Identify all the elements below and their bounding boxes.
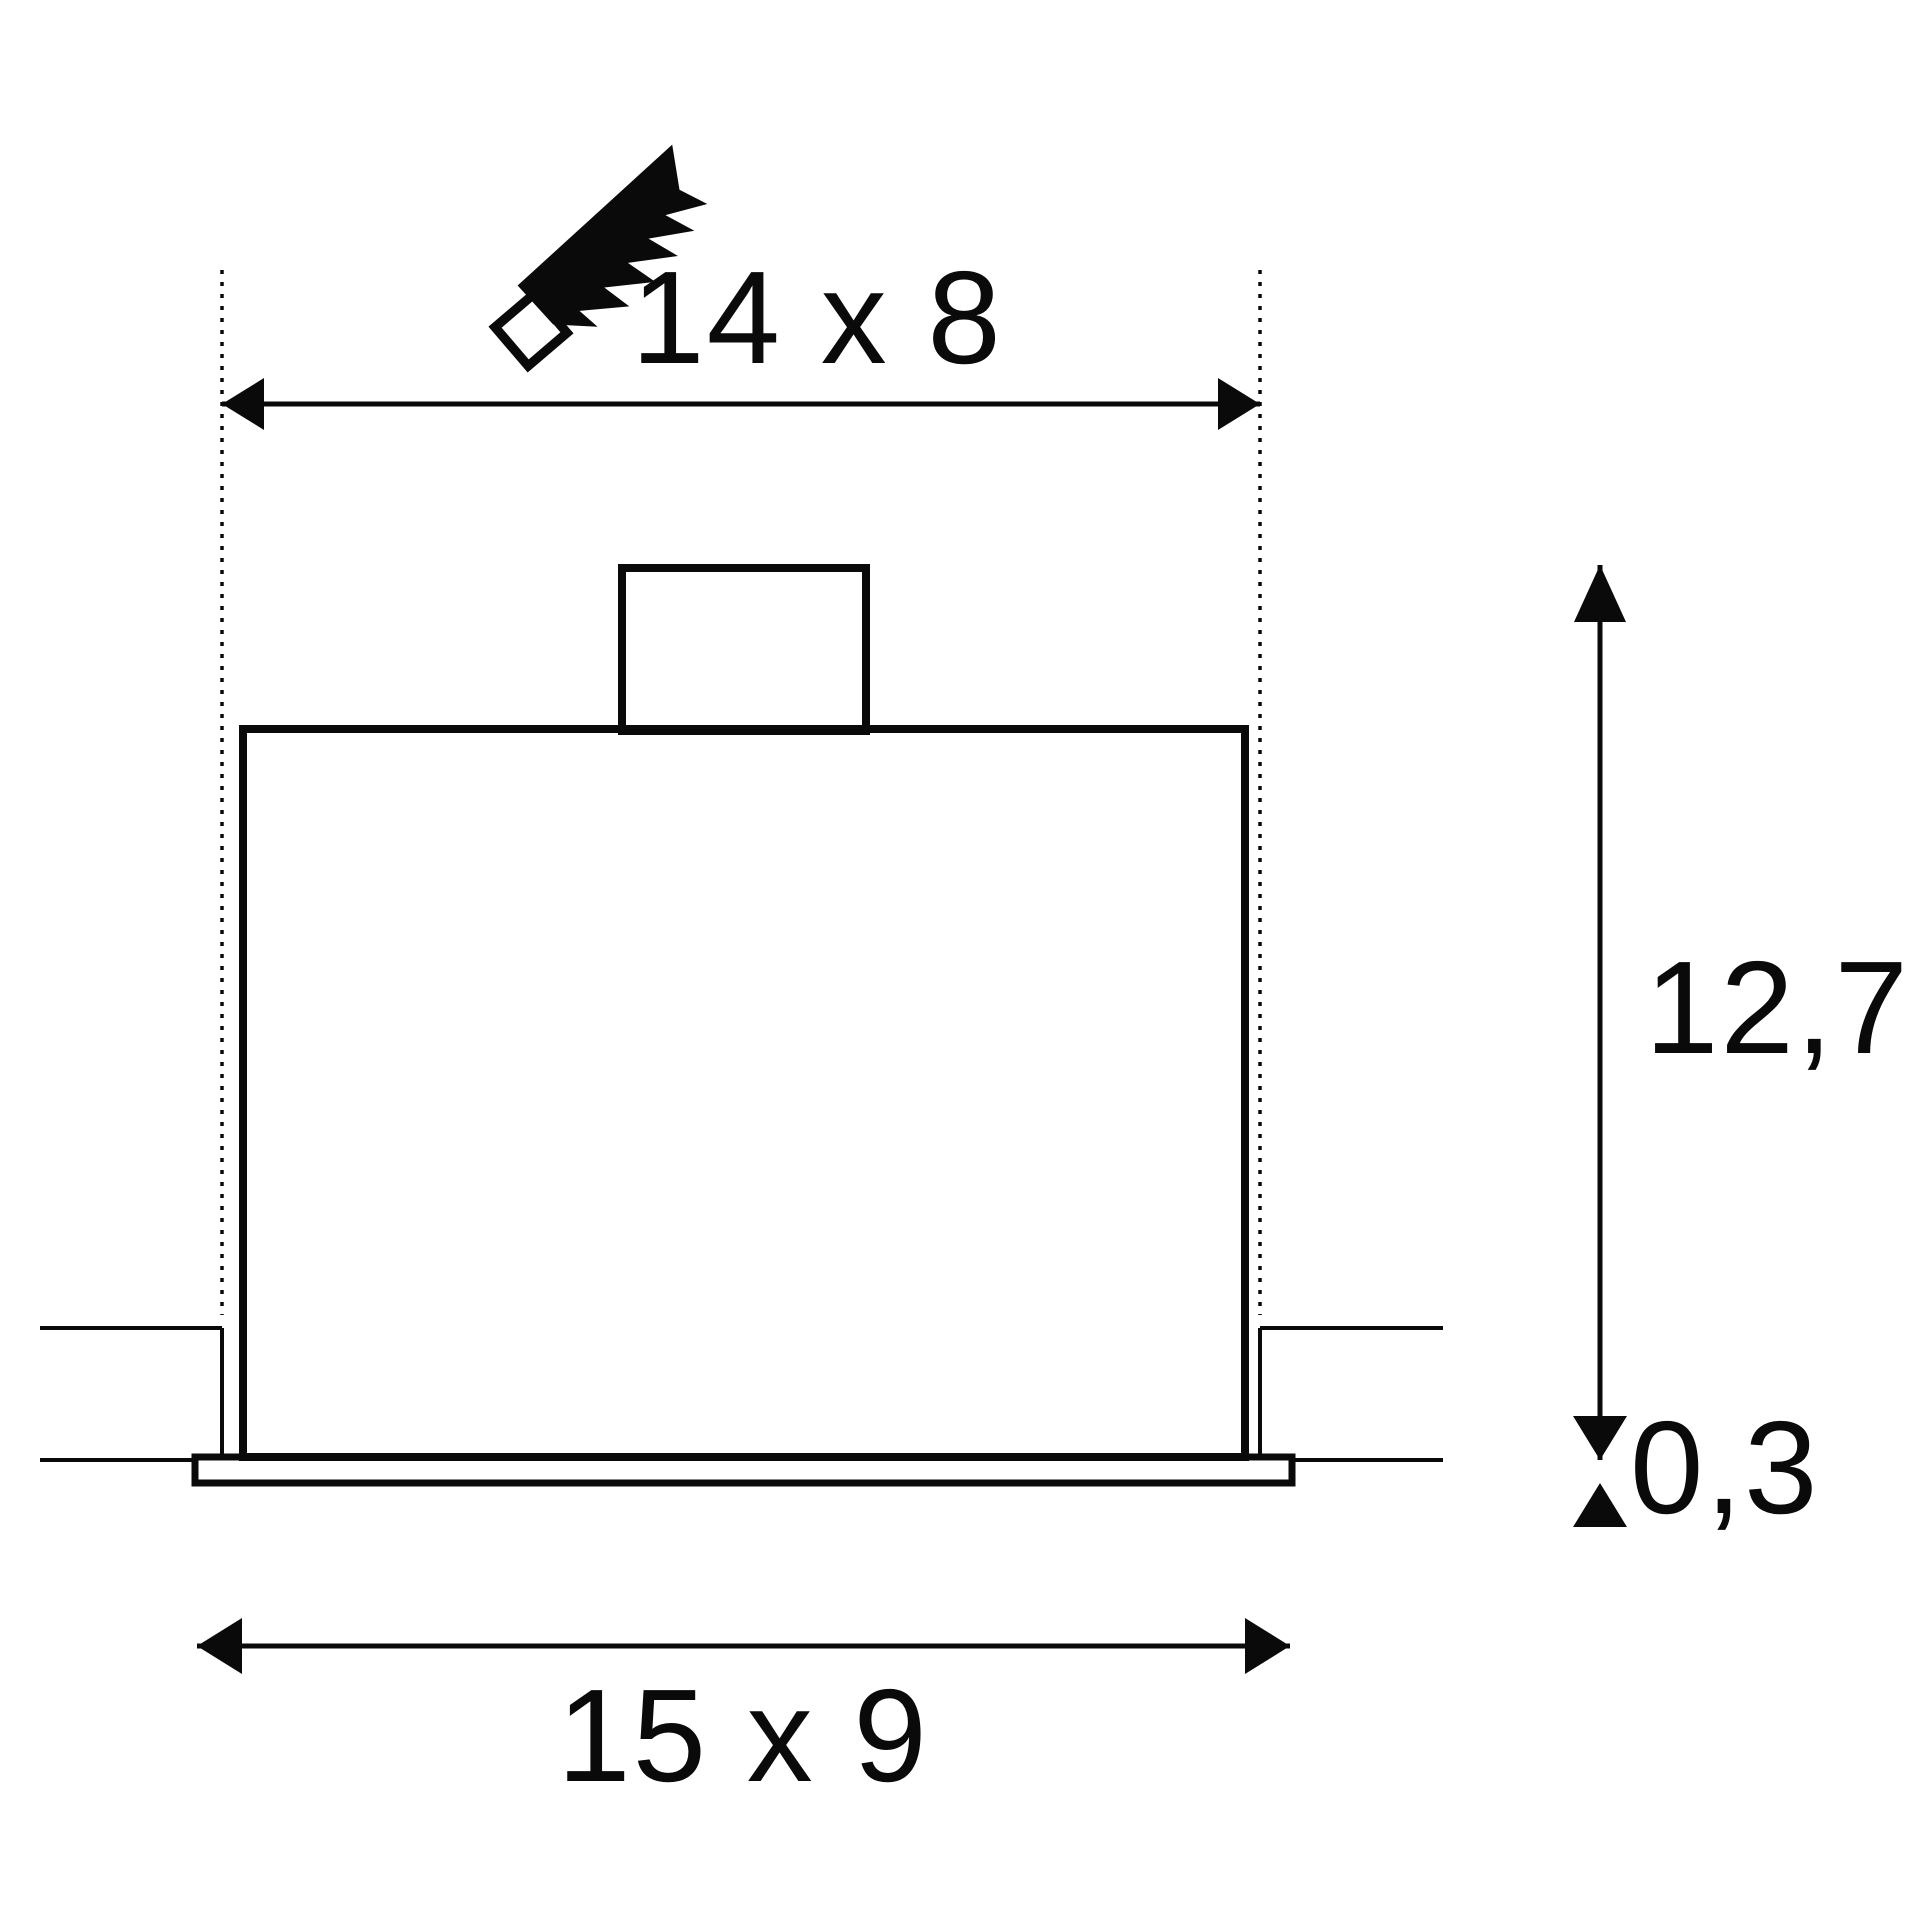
ceiling-cross-section (40, 1328, 1443, 1460)
junction-box (622, 568, 866, 731)
depth-dimension: 12,7 (1573, 565, 1910, 1460)
frame-thickness-label: 0,3 (1630, 1394, 1820, 1541)
luminaire-housing (243, 568, 1245, 1457)
arrowhead-left-icon (222, 378, 264, 430)
dimension-drawing: 14 x 8 12,7 0,3 (0, 0, 1920, 1920)
arrowhead-left-icon (197, 1618, 242, 1674)
arrowhead-down-icon (1573, 1416, 1627, 1460)
cutout-dimension-label: 14 x 8 (631, 244, 1003, 391)
cutout-dimension: 14 x 8 (222, 244, 1260, 1315)
arrowhead-right-icon (1245, 1618, 1290, 1674)
fixture-dimension-label: 15 x 9 (557, 1662, 929, 1809)
arrowhead-up-icon (1574, 565, 1626, 622)
luminaire-cross-section-svg: 14 x 8 12,7 0,3 (0, 0, 1920, 1920)
fixture-dimension: 15 x 9 (197, 1618, 1290, 1809)
depth-dimension-label: 12,7 (1645, 934, 1910, 1081)
arrowhead-up-small-icon (1573, 1483, 1627, 1527)
arrowhead-right-icon (1218, 378, 1260, 430)
fixture-body (243, 729, 1245, 1457)
